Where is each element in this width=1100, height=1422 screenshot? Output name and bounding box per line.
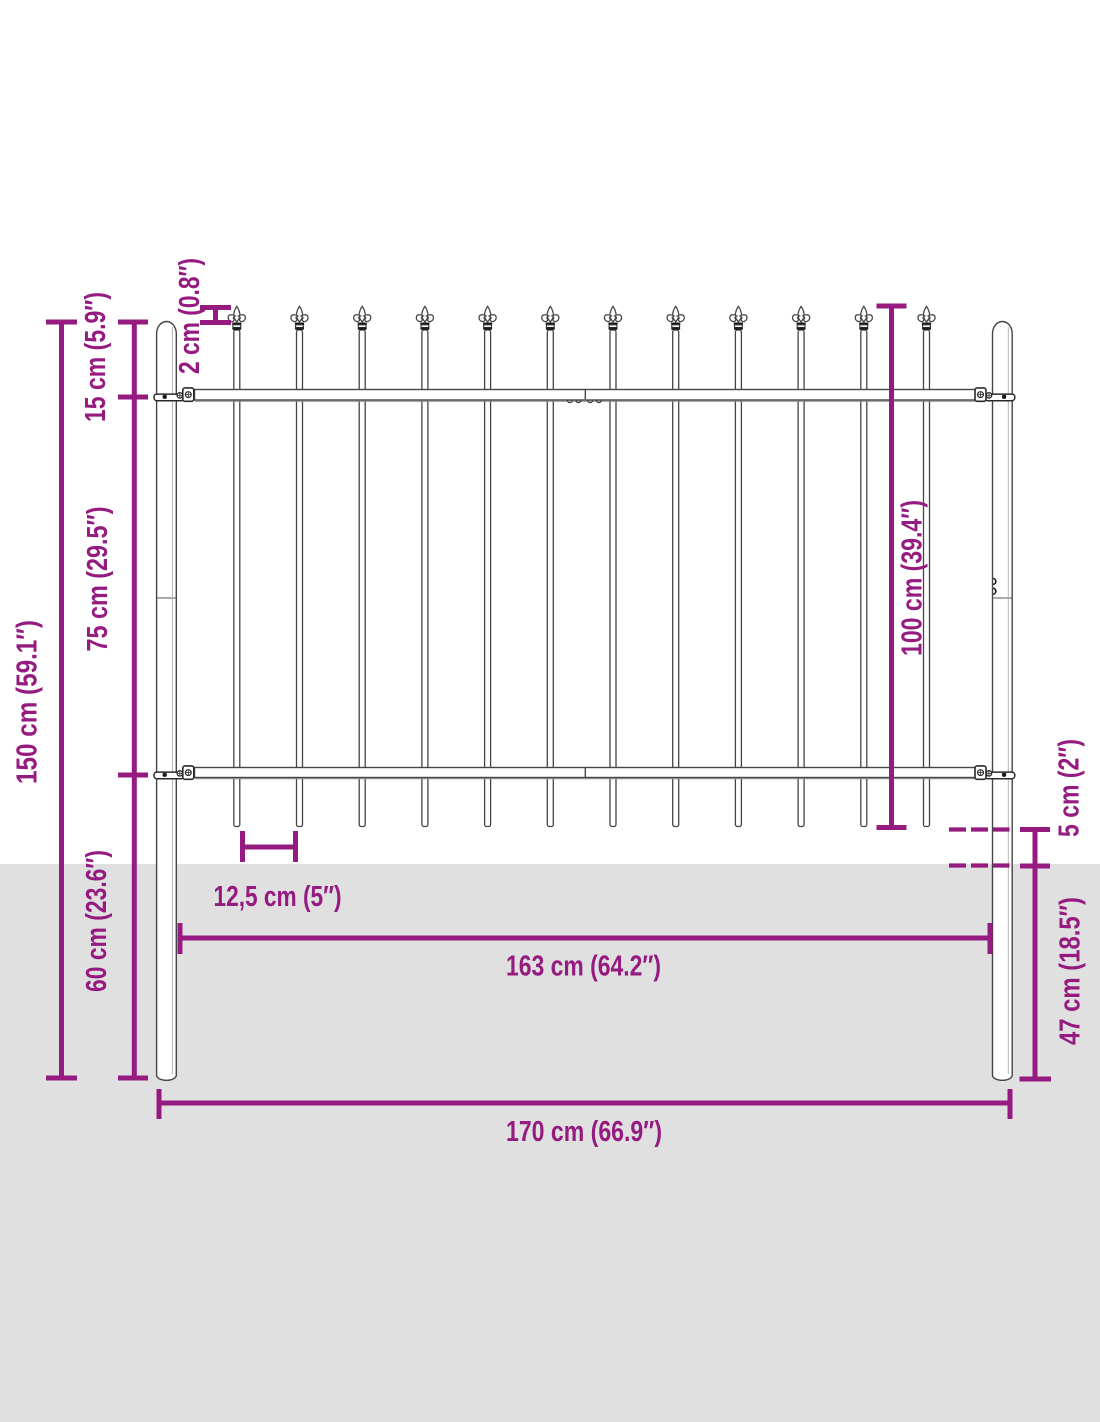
svg-text:170 cm (66.9″): 170 cm (66.9″) (506, 1116, 662, 1148)
svg-text:163 cm (64.2″): 163 cm (64.2″) (506, 950, 661, 982)
svg-text:5 cm (2″): 5 cm (2″) (1054, 739, 1086, 837)
svg-text:15 cm (5.9″): 15 cm (5.9″) (80, 292, 112, 422)
svg-text:60 cm (23.6″): 60 cm (23.6″) (81, 850, 113, 992)
svg-text:47 cm (18.5″): 47 cm (18.5″) (1055, 897, 1087, 1045)
svg-text:100 cm (39.4″): 100 cm (39.4″) (897, 500, 929, 656)
svg-text:2 cm (0.8″): 2 cm (0.8″) (174, 258, 206, 374)
svg-text:150 cm (59.1″): 150 cm (59.1″) (12, 620, 44, 784)
svg-text:75 cm (29.5″): 75 cm (29.5″) (82, 507, 114, 652)
svg-text:12,5 cm (5″): 12,5 cm (5″) (214, 881, 342, 913)
